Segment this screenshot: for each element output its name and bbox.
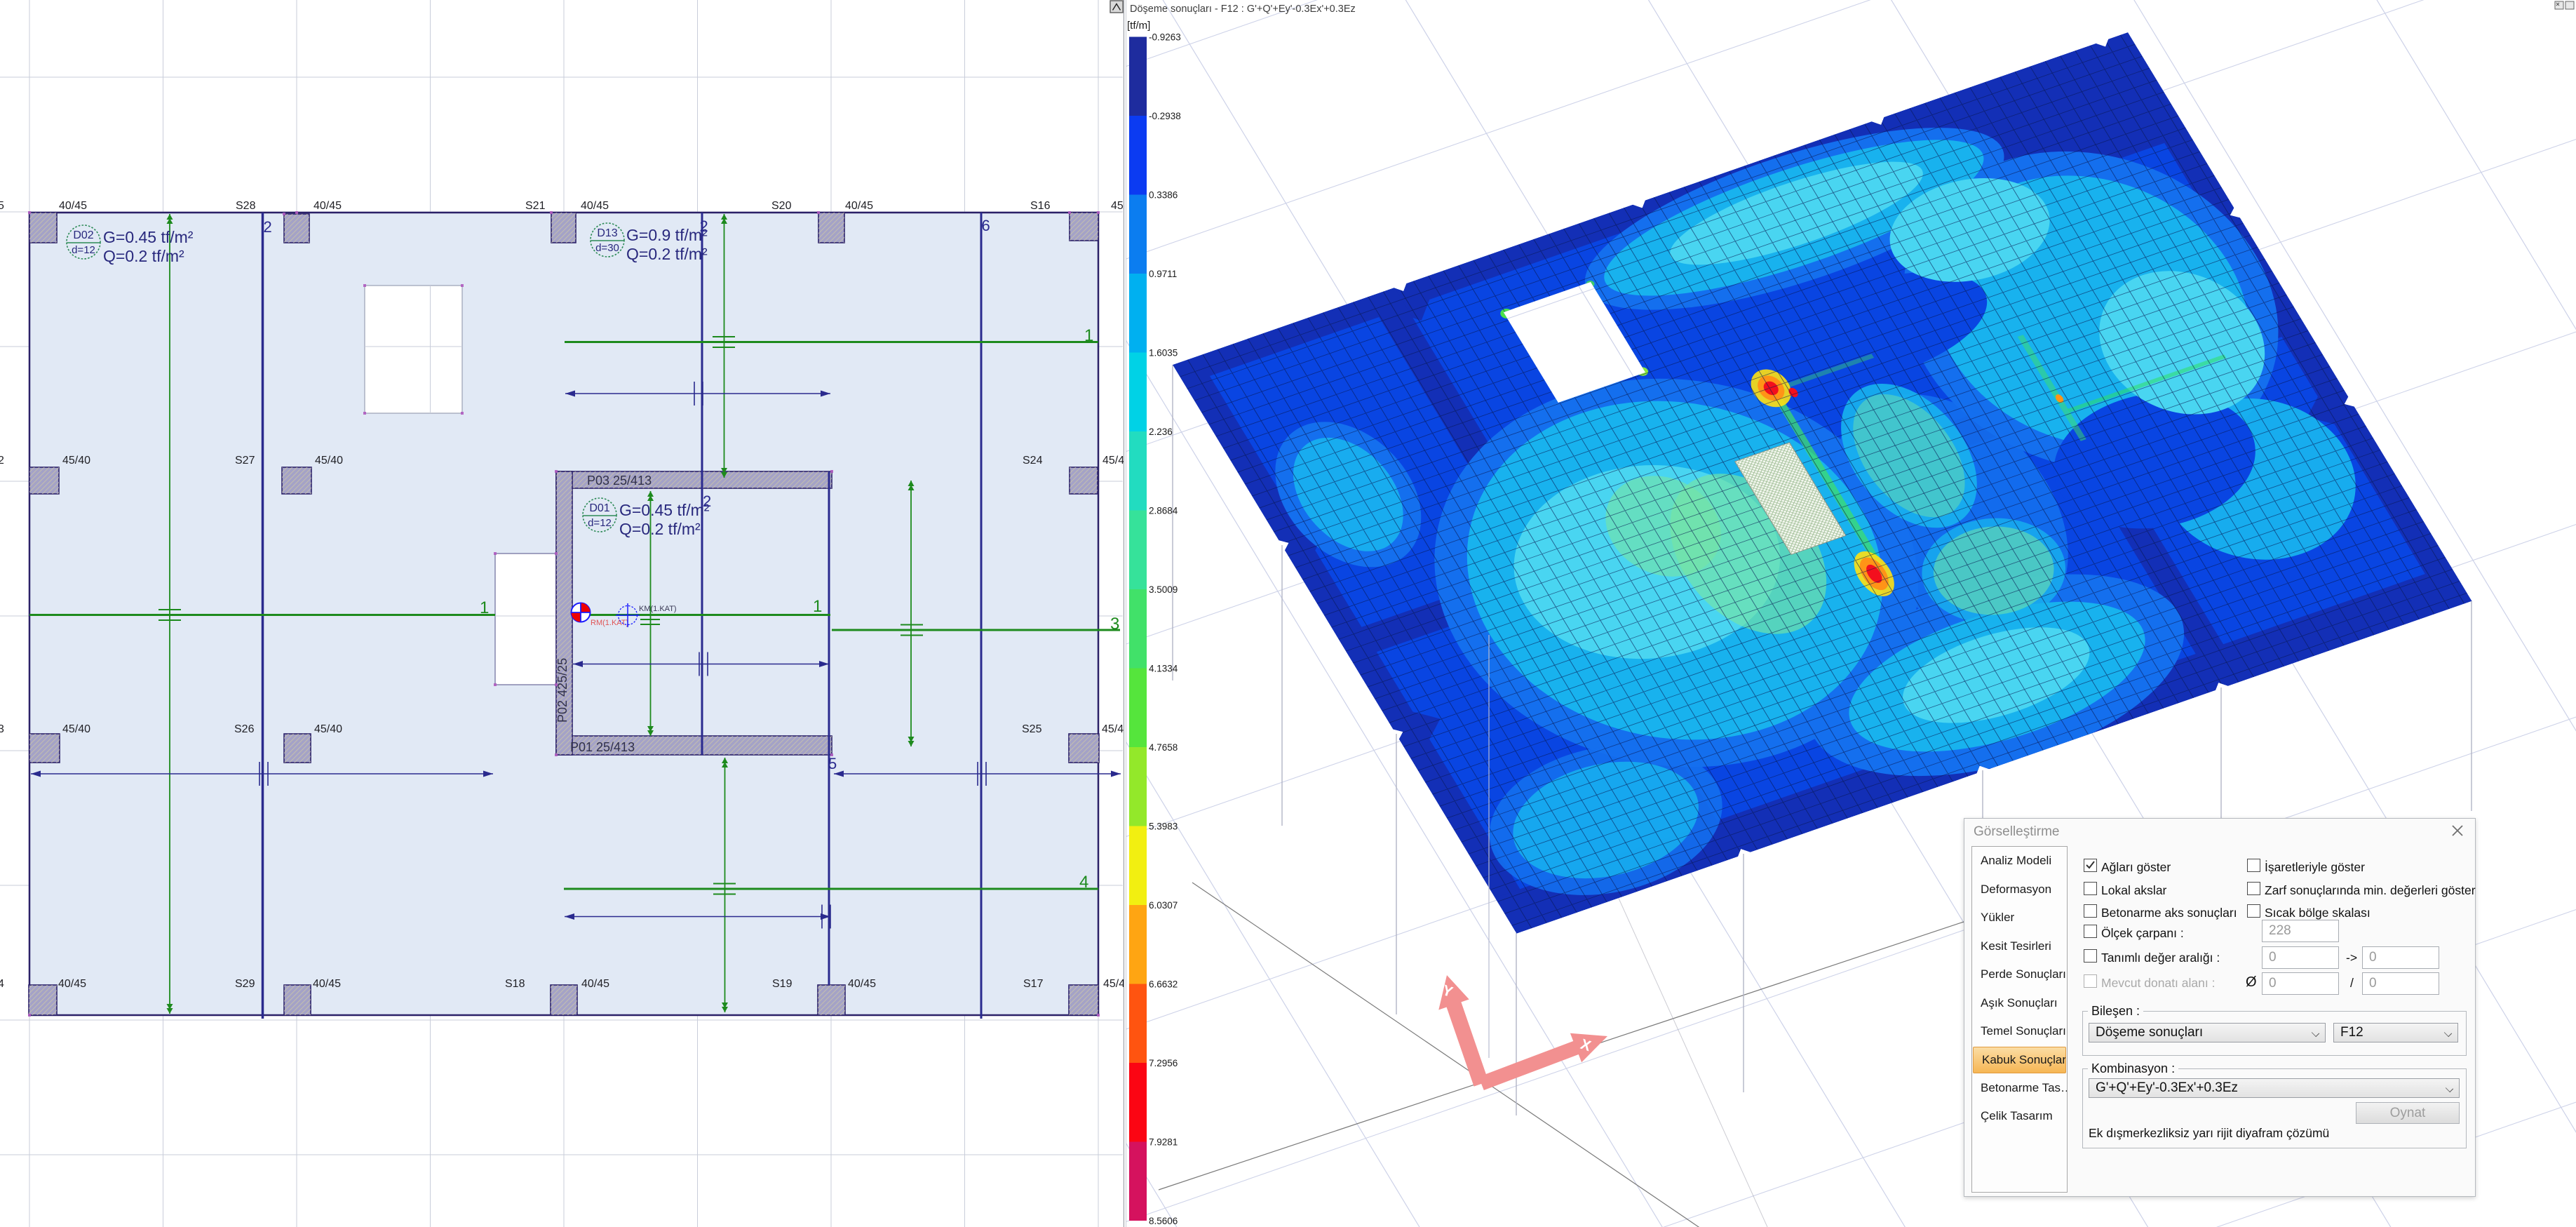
svg-text:40/45: 40/45	[58, 978, 86, 990]
svg-text:40/45: 40/45	[313, 978, 341, 990]
svg-text:40/45: 40/45	[581, 978, 609, 990]
svg-text:5.3983: 5.3983	[1149, 822, 1178, 832]
svg-text:2.8684: 2.8684	[1149, 506, 1178, 516]
svg-text:D01: D01	[589, 502, 609, 514]
svg-text:d=12: d=12	[72, 244, 95, 256]
svg-text:40/45: 40/45	[59, 200, 87, 212]
svg-text:KM(1.KAT): KM(1.KAT)	[639, 605, 677, 613]
svg-text:P03 25/413: P03 25/413	[587, 474, 652, 488]
svg-text:d=30: d=30	[595, 242, 619, 254]
svg-text:S26: S26	[234, 723, 255, 735]
svg-text:8.5606: 8.5606	[1149, 1216, 1178, 1226]
svg-text:0.9711: 0.9711	[1149, 269, 1177, 279]
svg-text:D13: D13	[597, 227, 617, 239]
svg-text:2: 2	[0, 455, 4, 467]
svg-text:45/40: 45/40	[314, 723, 342, 735]
svg-text:S24: S24	[1023, 455, 1043, 467]
svg-text:45/40: 45/40	[62, 723, 90, 735]
svg-text:45/4: 45/4	[1102, 723, 1124, 735]
svg-text:7.2956: 7.2956	[1149, 1058, 1178, 1068]
svg-text:S20: S20	[771, 200, 792, 212]
svg-text:40/45: 40/45	[313, 200, 342, 212]
svg-text:45/40: 45/40	[62, 455, 90, 467]
svg-text:P02 425/25: P02 425/25	[555, 658, 569, 723]
svg-text:6: 6	[982, 217, 990, 234]
svg-text:5: 5	[0, 200, 4, 212]
svg-text:1: 1	[813, 597, 822, 616]
svg-text:1.6035: 1.6035	[1149, 348, 1178, 358]
svg-text:3.5009: 3.5009	[1149, 584, 1178, 595]
svg-text:4.7658: 4.7658	[1149, 742, 1178, 753]
svg-text:S25: S25	[1022, 723, 1042, 735]
svg-text:S29: S29	[235, 978, 255, 990]
svg-text:4: 4	[0, 978, 4, 990]
svg-text:P01 25/413: P01 25/413	[570, 740, 635, 754]
svg-text:-0.9263: -0.9263	[1149, 32, 1181, 43]
svg-text:7.9281: 7.9281	[1149, 1137, 1178, 1148]
svg-text:40/45: 40/45	[845, 200, 873, 212]
svg-text:45/4: 45/4	[1102, 455, 1124, 467]
svg-text:S27: S27	[235, 455, 255, 467]
svg-text:[tf/m]: [tf/m]	[1127, 20, 1150, 32]
svg-text:Q=0.2 tf/m²: Q=0.2 tf/m²	[103, 247, 184, 265]
svg-text:S18: S18	[505, 978, 525, 990]
svg-text:G=0.45 tf/m²: G=0.45 tf/m²	[103, 228, 194, 246]
svg-text:2: 2	[703, 492, 711, 510]
svg-text:-0.2938: -0.2938	[1149, 111, 1181, 121]
svg-text:2: 2	[700, 217, 708, 235]
svg-text:2: 2	[264, 218, 272, 236]
svg-text:D02: D02	[73, 229, 93, 241]
svg-text:S19: S19	[772, 978, 793, 990]
svg-text:0.3386: 0.3386	[1149, 190, 1178, 201]
svg-text:S17: S17	[1023, 978, 1044, 990]
svg-text:1: 1	[480, 598, 489, 617]
svg-text:6.0307: 6.0307	[1149, 900, 1178, 911]
svg-text:1: 1	[1084, 326, 1093, 345]
svg-text:Q=0.2 tf/m²: Q=0.2 tf/m²	[619, 520, 701, 538]
svg-text:2.236: 2.236	[1149, 427, 1173, 437]
svg-text:4.1334: 4.1334	[1149, 664, 1178, 674]
svg-text:d=12: d=12	[588, 517, 612, 529]
svg-text:40/45: 40/45	[581, 200, 609, 212]
svg-text:Döşeme sonuçları - F12 : G'+Q': Döşeme sonuçları - F12 : G'+Q'+Ey'-0.3Ex…	[1130, 4, 1356, 15]
svg-text:45/4: 45/4	[1103, 978, 1125, 990]
svg-text:G=0.45 tf/m²: G=0.45 tf/m²	[619, 501, 710, 519]
svg-text:Q=0.2 tf/m²: Q=0.2 tf/m²	[626, 245, 708, 263]
svg-text:40/45: 40/45	[848, 978, 876, 990]
svg-text:S28: S28	[236, 200, 256, 212]
svg-text:3: 3	[1110, 615, 1119, 633]
svg-text:5: 5	[828, 755, 837, 772]
svg-text:G=0.9 tf/m²: G=0.9 tf/m²	[626, 226, 708, 244]
svg-text:S21: S21	[525, 200, 546, 212]
svg-text:3: 3	[0, 723, 4, 735]
svg-text:45/40: 45/40	[315, 455, 343, 467]
svg-text:S16: S16	[1030, 200, 1051, 212]
svg-text:4: 4	[1079, 873, 1088, 892]
svg-text:6.6632: 6.6632	[1149, 979, 1178, 990]
